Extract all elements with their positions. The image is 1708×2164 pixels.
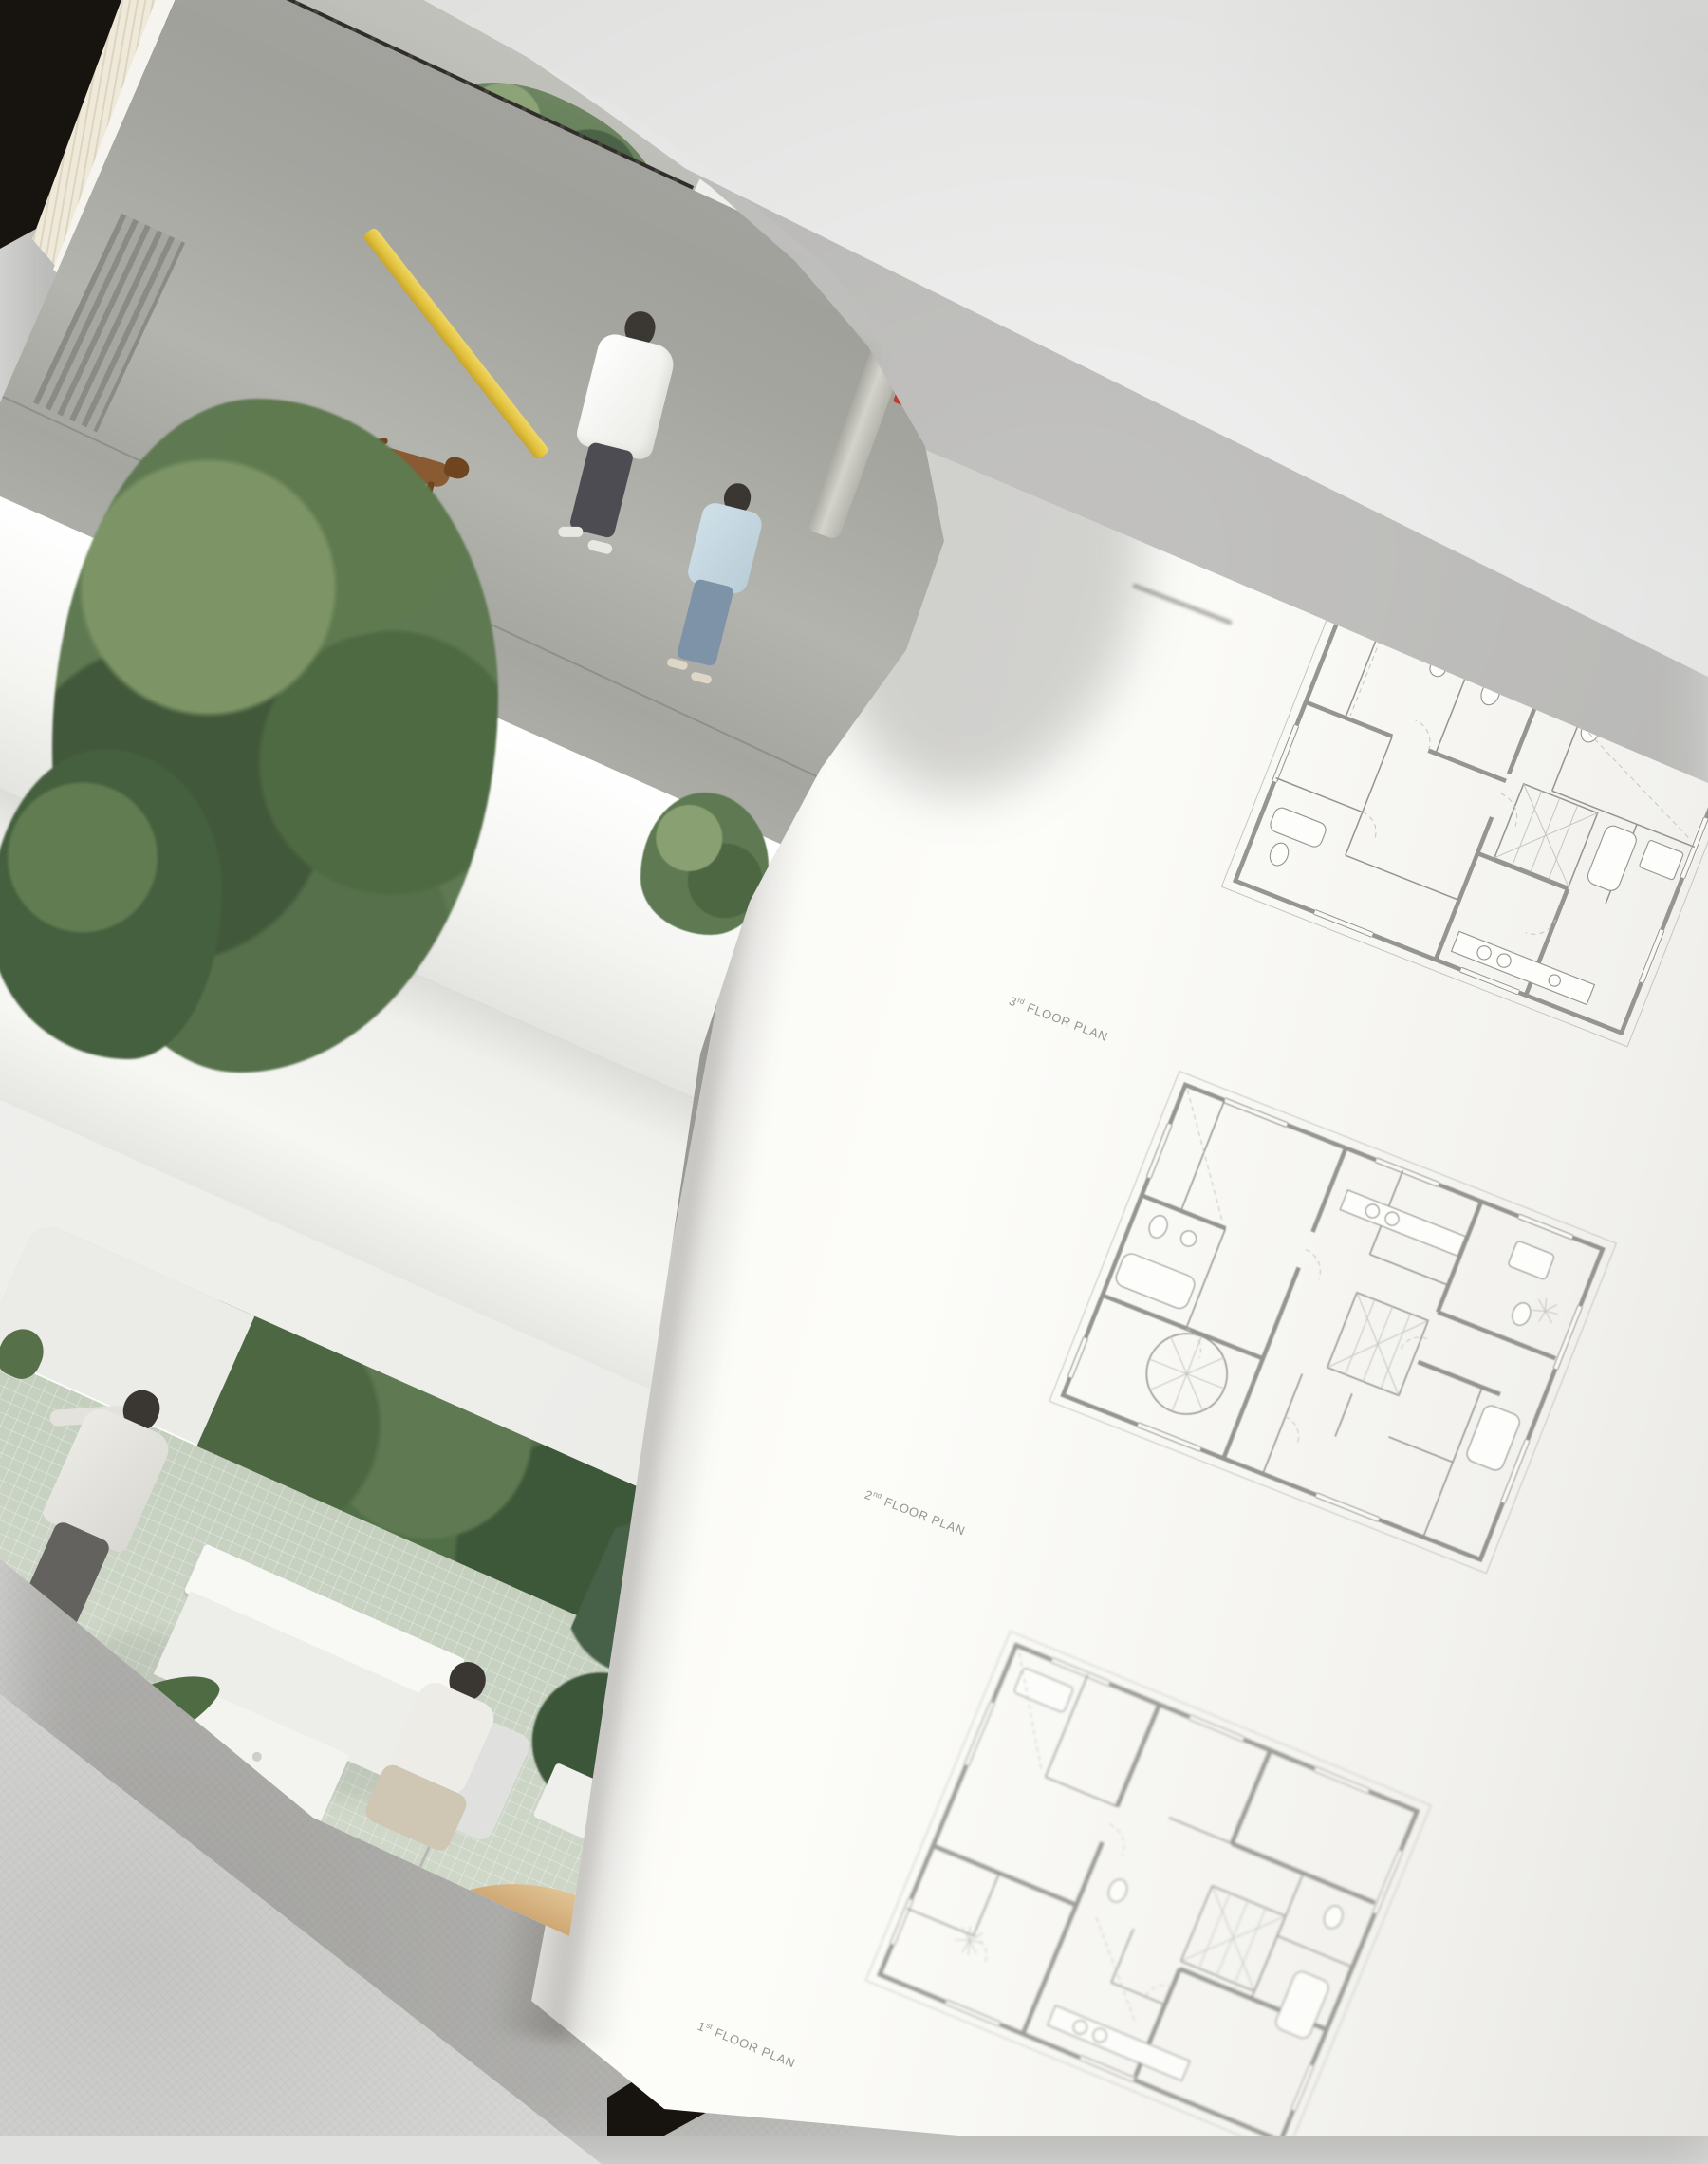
floor-plan-drawing-2nd (1043, 1065, 1623, 1579)
label-ordinal: nd (872, 1489, 883, 1501)
label-ordinal: st (705, 2022, 714, 2032)
label-text: FLOOR PLAN (1025, 1000, 1110, 1044)
floor-plan-label-3rd: 3rdFLOOR PLAN (1007, 994, 1110, 1045)
plan-partitions (1103, 1100, 1546, 1537)
floor-plan-2nd-svg (1043, 1065, 1623, 1579)
label-ordinal: rd (1016, 996, 1026, 1006)
plan-stair (1327, 1293, 1428, 1396)
floor-plan-1st-svg (860, 1625, 1438, 2161)
plan-door-swings (904, 1652, 1268, 2033)
floor-plan-drawing-1st (860, 1625, 1438, 2161)
faint-page-caption (1132, 583, 1233, 625)
plan-windows (877, 1642, 1420, 2144)
plan-spiral-stair (1135, 1322, 1239, 1427)
plan-plant-symbol (1529, 1295, 1561, 1327)
